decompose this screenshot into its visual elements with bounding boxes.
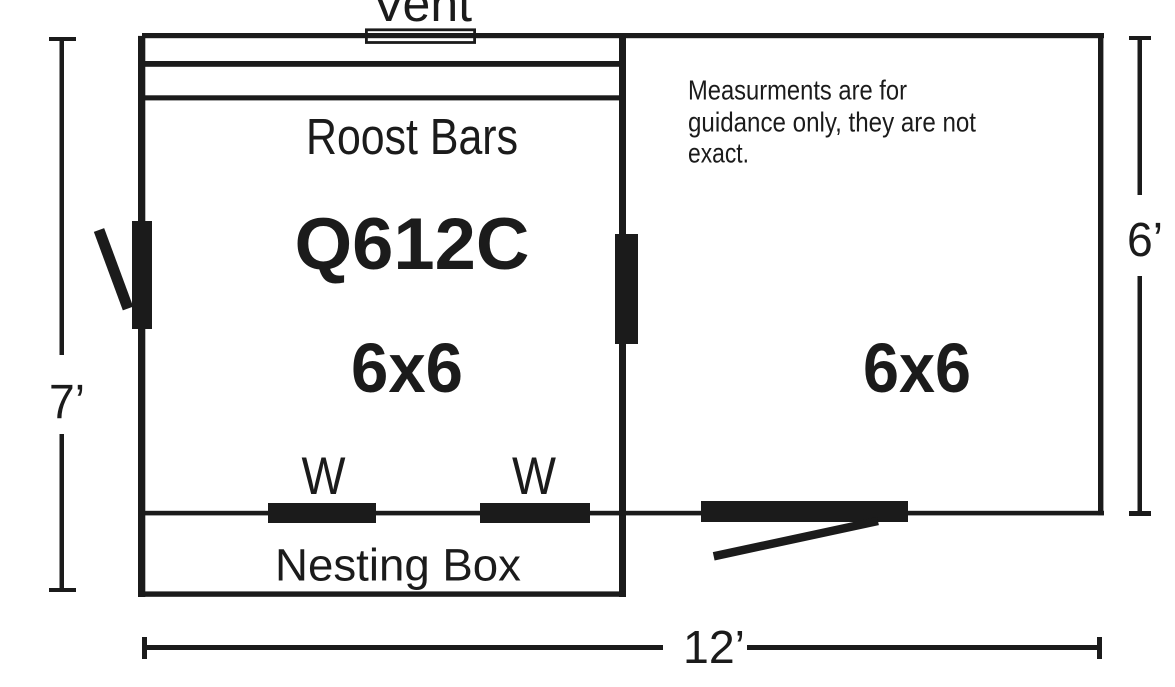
- svg-text:6’: 6’: [1127, 214, 1163, 267]
- svg-text:Roost Bars: Roost Bars: [306, 108, 518, 165]
- svg-text:6x6: 6x6: [863, 329, 971, 407]
- svg-text:exact.: exact.: [688, 138, 749, 169]
- svg-text:Vent: Vent: [372, 0, 472, 32]
- svg-text:guidance only, they are not: guidance only, they are not: [688, 106, 976, 137]
- svg-text:Nesting Box: Nesting Box: [275, 540, 522, 591]
- svg-text:7’: 7’: [49, 376, 85, 429]
- svg-text:Q612C: Q612C: [295, 204, 530, 285]
- svg-text:6x6: 6x6: [351, 329, 463, 407]
- svg-text:Measurments are for: Measurments are for: [688, 75, 907, 106]
- svg-text:W: W: [302, 447, 346, 506]
- svg-text:12’: 12’: [683, 621, 745, 673]
- svg-text:W: W: [512, 447, 556, 506]
